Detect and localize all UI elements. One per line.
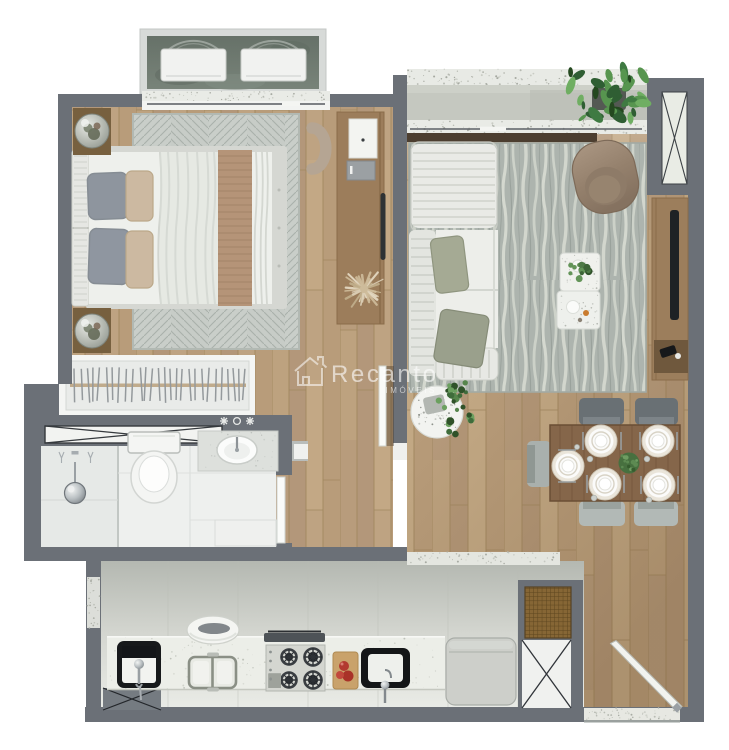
svg-text:Recanto: Recanto [331, 361, 439, 388]
svg-text:IMÓVEIS: IMÓVEIS [385, 386, 437, 395]
